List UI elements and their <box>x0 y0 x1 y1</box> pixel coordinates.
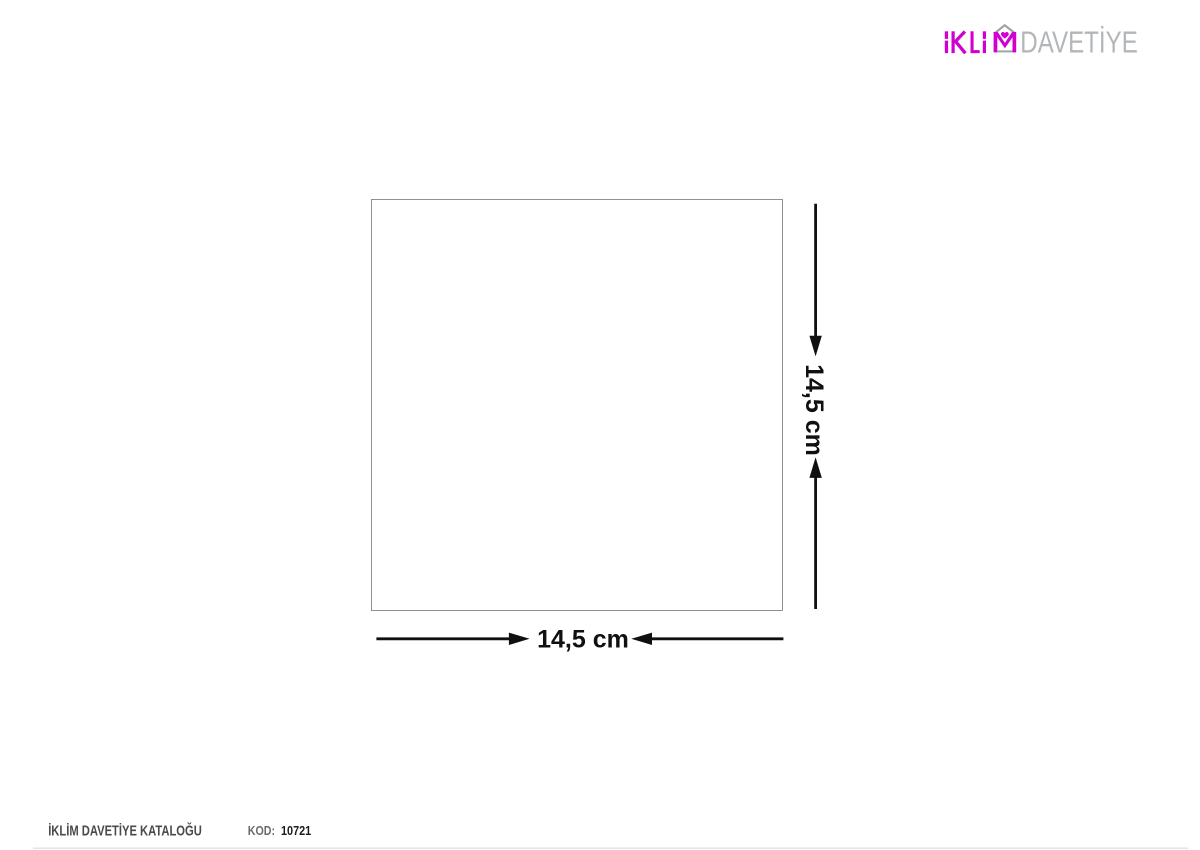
svg-text:KOD:: KOD: <box>248 824 275 838</box>
svg-text:10721: 10721 <box>281 824 311 838</box>
svg-text:14,5 cm: 14,5 cm <box>800 364 828 456</box>
svg-text:İKLİM DAVETİYE KATALOĞU: İKLİM DAVETİYE KATALOĞU <box>48 822 202 840</box>
svg-text:14,5 cm: 14,5 cm <box>537 625 629 653</box>
